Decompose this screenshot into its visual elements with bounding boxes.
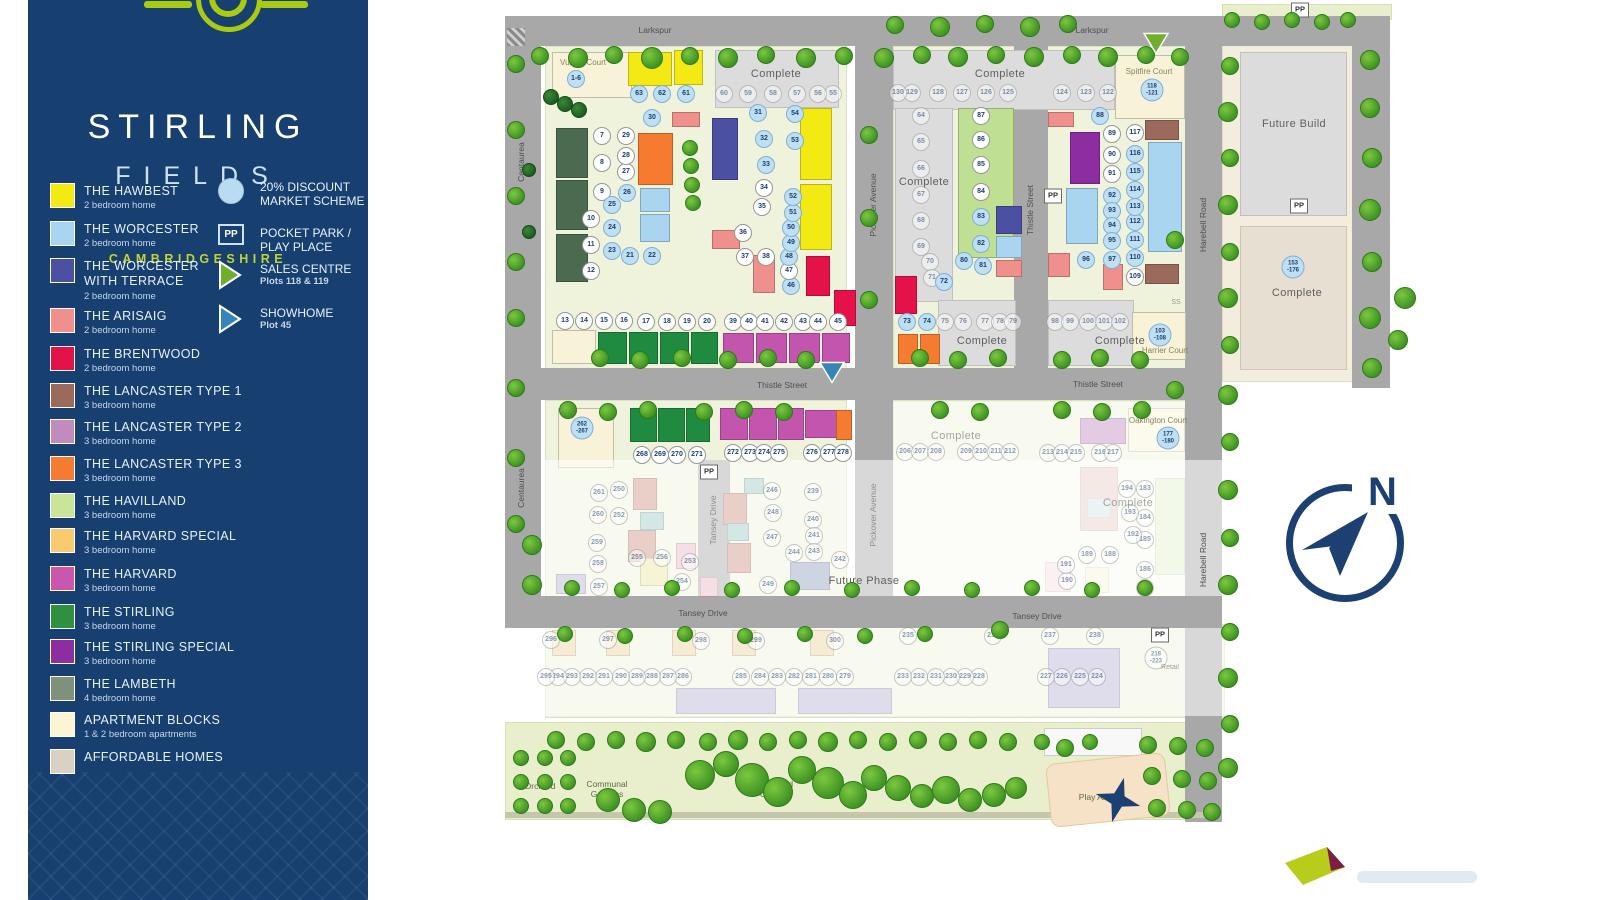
plot-circle[interactable]: 31 bbox=[749, 104, 767, 122]
plot-circle[interactable]: 91 bbox=[1103, 165, 1121, 183]
plot-circle[interactable]: 128 bbox=[929, 84, 947, 102]
plot-circle[interactable]: 25 bbox=[603, 196, 621, 214]
map-label: Tansey Drive bbox=[708, 495, 718, 544]
house-unit bbox=[1066, 188, 1098, 244]
plot-circle[interactable]: 117 bbox=[1126, 124, 1144, 142]
tree-icon bbox=[844, 582, 860, 598]
plot-circle[interactable]: 21 bbox=[621, 247, 639, 265]
showhome-marker[interactable] bbox=[819, 362, 845, 389]
plot-circle[interactable]: 208 bbox=[927, 443, 945, 461]
tree-icon bbox=[559, 401, 577, 419]
tree-icon bbox=[614, 582, 630, 598]
tree-icon bbox=[1359, 199, 1381, 221]
plot-circle[interactable]: 7 bbox=[593, 127, 611, 145]
tree-icon bbox=[507, 515, 525, 533]
tree-icon bbox=[728, 730, 748, 750]
site-plan-page: { "sidebar": { "title": "STIRLING", "sub… bbox=[0, 0, 1600, 900]
plot-circle[interactable]: 232 bbox=[910, 668, 928, 686]
plot-circle[interactable]: 282 bbox=[785, 668, 803, 686]
tree-icon bbox=[958, 788, 982, 812]
plot-circle[interactable]: 51 bbox=[784, 204, 802, 222]
plot-circle[interactable]: 269 bbox=[651, 446, 669, 464]
map-label: Complete bbox=[931, 431, 981, 441]
plot-circle[interactable]: 271 bbox=[688, 446, 706, 464]
tree-icon bbox=[1340, 12, 1356, 28]
plot-circle[interactable]: 97 bbox=[1103, 251, 1121, 269]
plot-circle[interactable]: 102 bbox=[1111, 313, 1129, 331]
plot-circle[interactable]: 126 bbox=[977, 84, 995, 102]
plot-circle[interactable]: 249 bbox=[759, 576, 777, 594]
plot-circle[interactable]: 113 bbox=[1126, 198, 1144, 216]
plot-circle[interactable]: 37 bbox=[736, 248, 754, 266]
plot-circle[interactable]: 122 bbox=[1099, 84, 1117, 102]
plot-circle[interactable]: 276 bbox=[803, 444, 821, 462]
tree-icon bbox=[1196, 739, 1214, 757]
tree-icon bbox=[684, 177, 700, 193]
street-road bbox=[505, 596, 1222, 628]
plot-circle[interactable]: 110 bbox=[1126, 249, 1144, 267]
plot-circle[interactable]: 281 bbox=[802, 668, 820, 686]
tree-icon bbox=[513, 750, 529, 766]
plot-circle[interactable]: 278 bbox=[834, 444, 852, 462]
plot-circle[interactable]: 1-6 bbox=[567, 70, 585, 88]
tree-icon bbox=[969, 731, 987, 749]
tree-icon bbox=[537, 750, 553, 766]
plot-circle[interactable]: 118 -121 bbox=[1141, 79, 1164, 102]
tree-icon bbox=[1059, 15, 1077, 33]
tree-icon bbox=[664, 580, 680, 596]
plot-circle[interactable]: 243 bbox=[805, 543, 823, 561]
plot-circle[interactable]: 59 bbox=[739, 85, 757, 103]
plot-circle[interactable]: 83 bbox=[972, 208, 990, 226]
plot-circle[interactable]: 30 bbox=[643, 109, 661, 127]
plot-circle[interactable]: 11 bbox=[582, 236, 600, 254]
plot-circle[interactable]: 111 bbox=[1126, 231, 1144, 249]
plot-circle[interactable]: 26 bbox=[618, 184, 636, 202]
plot-circle[interactable]: 217 bbox=[1104, 444, 1122, 462]
tree-icon bbox=[560, 798, 576, 814]
plot-circle[interactable]: 153 -176 bbox=[1282, 256, 1305, 279]
plot-circle[interactable]: 103 -108 bbox=[1149, 324, 1172, 347]
map-label: Larkspur bbox=[1075, 25, 1108, 35]
plot-circle[interactable]: 85 bbox=[972, 156, 990, 174]
tree-icon bbox=[879, 733, 897, 751]
tree-icon bbox=[818, 732, 838, 752]
plot-circle[interactable]: 231 bbox=[927, 668, 945, 686]
building-footprint bbox=[1240, 52, 1347, 216]
plot-circle[interactable]: 292 bbox=[579, 668, 597, 686]
plot-circle[interactable]: 257 bbox=[590, 578, 608, 596]
tree-icon bbox=[1133, 401, 1151, 419]
plot-circle[interactable]: 270 bbox=[668, 446, 686, 464]
tree-icon bbox=[987, 46, 1005, 64]
plot-circle[interactable]: 89 bbox=[1103, 125, 1121, 143]
tree-icon bbox=[522, 225, 536, 239]
plot-circle[interactable]: 280 bbox=[819, 668, 837, 686]
tree-icon bbox=[695, 403, 713, 421]
house-unit bbox=[1145, 120, 1179, 140]
tree-icon bbox=[522, 535, 542, 555]
plot-circle[interactable]: 44 bbox=[809, 313, 827, 331]
tree-icon bbox=[1063, 46, 1081, 64]
plot-circle[interactable]: 72 bbox=[935, 273, 953, 291]
plot-circle[interactable]: 109 bbox=[1126, 268, 1144, 286]
tree-icon bbox=[1314, 14, 1330, 30]
map-label: Complete bbox=[975, 69, 1025, 79]
map-label: Complete bbox=[957, 336, 1007, 346]
plot-circle[interactable]: 290 bbox=[612, 668, 630, 686]
house-unit bbox=[1048, 253, 1070, 277]
tree-icon bbox=[939, 733, 957, 751]
pocket-park-badge: PP bbox=[700, 465, 718, 480]
plot-circle[interactable]: 38 bbox=[757, 248, 775, 266]
plot-circle[interactable]: 24 bbox=[603, 219, 621, 237]
plot-circle[interactable]: 283 bbox=[768, 668, 786, 686]
tree-icon bbox=[1218, 758, 1238, 778]
house-unit bbox=[806, 256, 830, 296]
tree-icon bbox=[1218, 668, 1238, 688]
plot-circle[interactable]: 73 bbox=[898, 313, 916, 331]
tree-icon bbox=[1171, 48, 1189, 66]
plot-circle[interactable]: 10 bbox=[582, 210, 600, 228]
tree-icon bbox=[1199, 772, 1217, 790]
plot-circle[interactable]: 212 bbox=[1001, 443, 1019, 461]
plot-circle[interactable]: 225 bbox=[1071, 668, 1089, 686]
tree-icon bbox=[1169, 737, 1187, 755]
plot-circle[interactable]: 23 bbox=[603, 242, 621, 260]
plot-circle[interactable]: 41 bbox=[756, 313, 774, 331]
plot-circle[interactable]: 239 bbox=[804, 483, 822, 501]
plot-circle[interactable]: 258 bbox=[589, 555, 607, 573]
plot-circle[interactable]: 189 bbox=[1078, 546, 1096, 564]
plot-circle[interactable]: 252 bbox=[610, 507, 628, 525]
plot-circle[interactable]: 14 bbox=[575, 312, 593, 330]
plot-circle[interactable]: 289 bbox=[628, 668, 646, 686]
plot-circle[interactable]: 42 bbox=[775, 313, 793, 331]
plot-circle[interactable]: 74 bbox=[918, 313, 936, 331]
plot-circle[interactable]: 79 bbox=[1004, 313, 1022, 331]
tree-icon bbox=[531, 47, 549, 65]
tree-icon bbox=[1020, 17, 1040, 37]
plot-circle[interactable]: 62 bbox=[653, 85, 671, 103]
tree-icon bbox=[1224, 12, 1240, 28]
plot-circle[interactable]: 238 bbox=[1086, 627, 1104, 645]
plot-circle[interactable]: 246 bbox=[763, 482, 781, 500]
tree-icon bbox=[735, 401, 753, 419]
plot-circle[interactable]: 57 bbox=[788, 85, 806, 103]
tree-icon bbox=[622, 798, 646, 822]
map-label: Spitfire Court bbox=[1126, 67, 1173, 77]
map-label: Centaurea bbox=[516, 468, 526, 508]
plot-circle[interactable]: 186 bbox=[1136, 561, 1154, 579]
plot-circle[interactable]: 279 bbox=[836, 668, 854, 686]
plot-circle[interactable]: 58 bbox=[764, 85, 782, 103]
plot-circle[interactable]: 82 bbox=[972, 235, 990, 253]
tree-icon bbox=[636, 732, 656, 752]
plot-circle[interactable]: 84 bbox=[972, 183, 990, 201]
tree-icon bbox=[999, 733, 1017, 751]
tree-icon bbox=[507, 187, 525, 205]
house-unit bbox=[691, 332, 718, 364]
tree-icon bbox=[1178, 801, 1196, 819]
plot-circle[interactable]: 125 bbox=[999, 84, 1017, 102]
plot-circle[interactable]: 215 bbox=[1067, 444, 1085, 462]
tree-icon bbox=[917, 626, 933, 642]
plot-circle[interactable]: 16 bbox=[615, 312, 633, 330]
tree-icon bbox=[631, 351, 649, 369]
plot-circle[interactable]: 275 bbox=[770, 444, 788, 462]
tree-icon bbox=[1024, 47, 1044, 67]
plot-circle[interactable]: 35 bbox=[753, 198, 771, 216]
plot-circle[interactable]: 75 bbox=[936, 313, 954, 331]
plot-circle[interactable]: 285 bbox=[732, 668, 750, 686]
plot-circle[interactable]: 80 bbox=[955, 252, 973, 270]
plot-circle[interactable]: 295 bbox=[537, 668, 555, 686]
plot-circle[interactable]: 237 bbox=[1041, 627, 1059, 645]
tree-icon bbox=[1362, 358, 1382, 378]
tree-icon bbox=[607, 731, 625, 749]
tree-icon bbox=[796, 48, 816, 68]
plot-circle[interactable]: 291 bbox=[595, 668, 613, 686]
plot-circle[interactable]: 233 bbox=[894, 668, 912, 686]
plot-circle[interactable]: 68 bbox=[912, 212, 930, 230]
plot-circle[interactable]: 22 bbox=[643, 247, 661, 265]
tree-icon bbox=[904, 580, 920, 596]
plot-circle[interactable]: 76 bbox=[954, 313, 972, 331]
plot-circle[interactable]: 235 bbox=[899, 627, 917, 645]
tree-icon bbox=[557, 626, 573, 642]
tree-icon bbox=[513, 774, 529, 790]
map-label: Harrier Court bbox=[1142, 346, 1188, 356]
tree-icon bbox=[507, 309, 525, 327]
plot-circle[interactable]: 194 bbox=[1118, 480, 1136, 498]
tree-icon bbox=[976, 15, 994, 33]
plot-circle[interactable]: 226 bbox=[1053, 668, 1071, 686]
tree-icon bbox=[861, 765, 887, 791]
plot-circle[interactable]: 29 bbox=[617, 127, 635, 145]
map-label: Retail bbox=[1161, 663, 1179, 673]
tree-icon bbox=[1221, 57, 1239, 75]
plot-circle[interactable]: 95 bbox=[1103, 232, 1121, 250]
house-unit bbox=[556, 128, 588, 178]
plot-circle[interactable]: 255 bbox=[628, 549, 646, 567]
map-label: Complete bbox=[1103, 498, 1153, 508]
plot-circle[interactable]: 32 bbox=[755, 130, 773, 148]
tree-icon bbox=[1218, 195, 1238, 215]
tree-icon bbox=[639, 401, 657, 419]
site-plan-map: 1-67891011121314151617181920212223242526… bbox=[0, 0, 1600, 900]
tree-icon bbox=[797, 351, 815, 369]
tree-icon bbox=[913, 46, 931, 64]
plot-circle[interactable]: 53 bbox=[786, 132, 804, 150]
plot-circle[interactable]: 130 bbox=[889, 84, 907, 102]
plot-circle[interactable]: 33 bbox=[757, 156, 775, 174]
plot-circle[interactable]: 300 bbox=[826, 632, 844, 650]
tree-icon bbox=[507, 449, 525, 467]
plot-circle[interactable]: 56 bbox=[809, 85, 827, 103]
plot-circle[interactable]: 260 bbox=[589, 506, 607, 524]
plot-circle[interactable]: 242 bbox=[831, 551, 849, 569]
plot-circle[interactable]: 20 bbox=[698, 313, 716, 331]
plot-circle[interactable]: 54 bbox=[786, 105, 804, 123]
tree-icon bbox=[513, 798, 529, 814]
plot-circle[interactable]: 116 bbox=[1126, 145, 1144, 163]
plot-circle[interactable]: 99 bbox=[1061, 313, 1079, 331]
house-unit bbox=[996, 236, 1022, 258]
plot-circle[interactable]: 96 bbox=[1077, 251, 1095, 269]
plot-circle[interactable]: 188 bbox=[1101, 546, 1119, 564]
house-unit bbox=[996, 206, 1022, 234]
map-label: Tansey Drive bbox=[1012, 611, 1061, 621]
plot-circle[interactable]: 90 bbox=[1103, 146, 1121, 164]
plot-circle[interactable]: 298 bbox=[692, 632, 710, 650]
tree-icon bbox=[989, 349, 1007, 367]
house-unit bbox=[638, 133, 673, 185]
tree-icon bbox=[641, 47, 663, 69]
tree-icon bbox=[1091, 349, 1109, 367]
map-label: Thistle Street bbox=[1073, 379, 1123, 389]
tree-icon bbox=[667, 731, 685, 749]
developer-logo-partial bbox=[1285, 843, 1495, 893]
tree-icon bbox=[931, 401, 949, 419]
plot-circle[interactable]: 87 bbox=[972, 107, 990, 125]
house-unit bbox=[672, 112, 700, 127]
plot-circle[interactable]: 227 bbox=[1037, 668, 1055, 686]
tree-icon bbox=[1360, 98, 1380, 118]
plot-circle[interactable]: 250 bbox=[610, 481, 628, 499]
plot-circle[interactable]: 256 bbox=[653, 549, 671, 567]
plot-circle[interactable]: 19 bbox=[678, 313, 696, 331]
plot-circle[interactable]: 60 bbox=[715, 85, 733, 103]
tree-icon bbox=[860, 209, 878, 227]
house-unit bbox=[658, 408, 685, 442]
tree-icon bbox=[1056, 739, 1074, 757]
plot-circle[interactable]: 124 bbox=[1053, 84, 1071, 102]
tree-icon bbox=[1218, 288, 1238, 308]
plot-circle[interactable]: 34 bbox=[755, 179, 773, 197]
plot-circle[interactable]: 183 bbox=[1136, 480, 1154, 498]
tree-icon bbox=[683, 158, 699, 174]
tree-icon bbox=[797, 626, 813, 642]
plot-circle[interactable]: 17 bbox=[637, 313, 655, 331]
tree-icon bbox=[874, 48, 894, 68]
tree-icon bbox=[560, 774, 576, 790]
plot-circle[interactable]: 224 bbox=[1088, 668, 1106, 686]
tree-icon bbox=[789, 731, 807, 749]
tree-icon bbox=[685, 760, 715, 790]
map-label: Complete bbox=[899, 177, 949, 187]
tree-icon bbox=[682, 140, 698, 156]
plot-circle[interactable]: 177 -180 bbox=[1157, 427, 1180, 450]
plot-circle[interactable]: 127 bbox=[953, 84, 971, 102]
tree-icon bbox=[911, 349, 929, 367]
plot-circle[interactable]: 12 bbox=[582, 262, 600, 280]
house-unit bbox=[895, 276, 917, 314]
plot-circle[interactable]: 123 bbox=[1077, 84, 1095, 102]
sales-centre-marker[interactable] bbox=[1143, 33, 1169, 60]
plot-circle[interactable]: 114 bbox=[1126, 181, 1144, 199]
plot-circle[interactable]: 262 -267 bbox=[571, 417, 594, 440]
plot-circle[interactable]: 61 bbox=[677, 85, 695, 103]
plot-circle[interactable]: 287 bbox=[659, 668, 677, 686]
plot-circle[interactable]: 36 bbox=[734, 224, 752, 242]
plot-circle[interactable]: 115 bbox=[1126, 163, 1144, 181]
tree-icon bbox=[1084, 582, 1100, 598]
plot-circle[interactable]: 244 bbox=[785, 544, 803, 562]
plot-circle[interactable]: 8 bbox=[593, 154, 611, 172]
map-label: Larkspur bbox=[638, 25, 671, 35]
plot-circle[interactable]: 248 bbox=[764, 504, 782, 522]
map-label: SS bbox=[1171, 298, 1180, 308]
plot-circle[interactable]: 297 bbox=[599, 631, 617, 649]
map-label: Future Phase bbox=[829, 576, 900, 586]
tree-icon bbox=[677, 626, 693, 642]
tree-icon bbox=[596, 788, 620, 812]
tree-icon bbox=[1173, 770, 1191, 788]
plot-circle[interactable]: 63 bbox=[630, 85, 648, 103]
plot-circle[interactable]: 18 bbox=[658, 313, 676, 331]
tree-icon bbox=[949, 351, 967, 369]
plot-circle[interactable]: 13 bbox=[556, 312, 574, 330]
plot-circle[interactable]: 65 bbox=[912, 133, 930, 151]
plot-circle[interactable]: 28 bbox=[617, 147, 635, 165]
plot-circle[interactable]: 27 bbox=[617, 163, 635, 181]
plot-circle[interactable]: 88 bbox=[1091, 107, 1109, 125]
tree-icon bbox=[673, 349, 691, 367]
map-label: Complete bbox=[751, 69, 801, 79]
tree-icon bbox=[605, 46, 623, 64]
tree-icon bbox=[1388, 330, 1408, 350]
tree-icon bbox=[835, 47, 853, 65]
tree-icon bbox=[971, 403, 989, 421]
tree-icon bbox=[1203, 803, 1221, 821]
plot-circle[interactable]: 268 bbox=[633, 446, 651, 464]
plot-circle[interactable]: 45 bbox=[829, 313, 847, 331]
plot-circle[interactable]: 253 bbox=[681, 553, 699, 571]
tree-icon bbox=[991, 621, 1009, 639]
plot-circle[interactable]: 64 bbox=[912, 107, 930, 125]
plot-circle[interactable]: 81 bbox=[974, 257, 992, 275]
plot-circle[interactable]: 272 bbox=[724, 444, 742, 462]
plot-circle[interactable]: 86 bbox=[972, 131, 990, 149]
plot-circle[interactable]: 67 bbox=[912, 186, 930, 204]
plot-circle[interactable]: 15 bbox=[595, 312, 613, 330]
plot-circle[interactable]: 192 bbox=[1124, 526, 1142, 544]
map-label: Future Build bbox=[1262, 119, 1326, 129]
tree-icon bbox=[1098, 47, 1118, 67]
plot-circle[interactable]: 191 bbox=[1057, 556, 1075, 574]
tree-icon bbox=[857, 628, 873, 644]
map-label: Pickover Avenue bbox=[868, 173, 878, 236]
compass-arrow-icon bbox=[1296, 500, 1376, 580]
tree-icon bbox=[1221, 433, 1239, 451]
plot-circle[interactable]: 190 bbox=[1058, 572, 1076, 590]
tree-icon bbox=[886, 16, 904, 34]
tree-icon bbox=[648, 800, 672, 824]
plot-circle[interactable]: 284 bbox=[751, 668, 769, 686]
tree-icon bbox=[1218, 480, 1238, 500]
pocket-park-badge: PP bbox=[1044, 189, 1062, 204]
plot-circle[interactable]: 261 bbox=[590, 484, 608, 502]
tree-icon bbox=[763, 777, 793, 807]
tree-icon bbox=[568, 48, 588, 68]
plot-circle[interactable]: 259 bbox=[588, 534, 606, 552]
house-unit bbox=[712, 118, 738, 180]
tree-icon bbox=[1221, 336, 1239, 354]
tree-icon bbox=[724, 582, 740, 598]
plot-circle[interactable]: 247 bbox=[763, 529, 781, 547]
plot-circle[interactable]: 52 bbox=[784, 188, 802, 206]
